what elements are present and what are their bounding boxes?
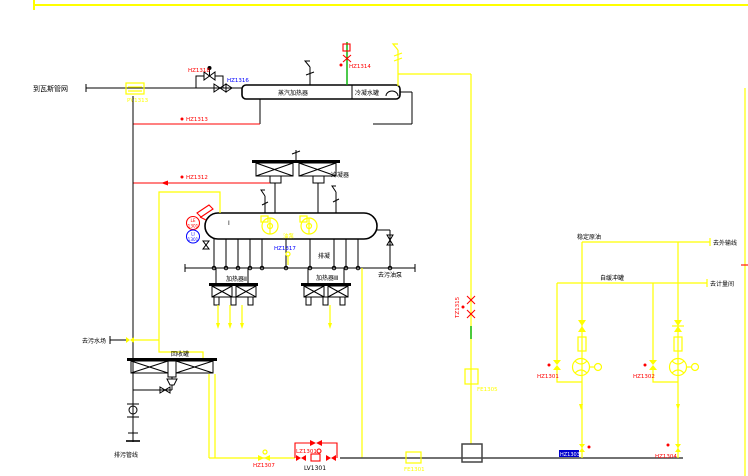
to-sewage-label: 去污水场 — [82, 337, 106, 345]
hz1316-tag: HZ1316 — [227, 78, 249, 84]
drain-header: 去污油泵 — [185, 264, 415, 279]
lv1301-tag: LV1301 — [304, 465, 326, 472]
pump-suction-header: FE1301 — [340, 452, 683, 473]
drum-pump-2: 油泵 — [283, 216, 317, 240]
level-indicator-li1301: LI 1301 — [187, 230, 210, 249]
fe1301-tag: FE1301 — [404, 467, 425, 473]
buffer-drum: Ⅰ — [205, 186, 393, 268]
fe1305-tag: FE1305 — [477, 387, 498, 393]
to-gas-network-label: 到瓦斯管网 — [33, 84, 68, 93]
lv1301-control-station: LZ1301 LV1301 — [295, 440, 337, 472]
bypass-valve-hz1318: HZ1318 — [188, 66, 223, 88]
hz1304-tag: HZ1304 — [655, 454, 677, 460]
yellow-relief-line — [393, 44, 471, 86]
level-transmitter-le1301: LE 1301 — [187, 217, 200, 230]
discharge-line-1: 稳定原油 去外输线 — [577, 233, 737, 247]
recovery-tank-label: 回收罐 — [171, 350, 189, 358]
hz1314-tag: HZ1314 — [349, 64, 371, 70]
svg-text:HZ1303: HZ1303 — [560, 452, 580, 458]
drain-pit — [462, 444, 482, 462]
pid-drawing-canvas: 到瓦斯管网 PV1313 HZ1318 HZ1316 蒸汽加热器 冷凝水罐 — [0, 0, 748, 476]
yellow-bottom-feed — [209, 374, 295, 458]
red-line-hz1312: HZ1312 — [133, 175, 270, 186]
condenser: 冷凝器 — [252, 150, 349, 213]
pid-diagram: 到瓦斯管网 PV1313 HZ1318 HZ1316 蒸汽加热器 冷凝水罐 — [0, 0, 748, 476]
svg-text:1301: 1301 — [188, 237, 199, 242]
drain-drops: HZ1317 排凝 — [214, 239, 358, 268]
hz1318-tag: HZ1318 — [188, 68, 210, 74]
yellow-main-riser: TZ1315 FE1305 — [455, 74, 498, 462]
vessel-right-label: 冷凝水罐 — [355, 89, 379, 97]
pump-note: 油泵 — [283, 232, 295, 240]
hz1313-tag: HZ1313 — [186, 117, 208, 123]
line2-end-label: 去计量间 — [710, 280, 734, 288]
svg-text:LI: LI — [191, 232, 195, 237]
control-valve-pv1313: PV1313 — [126, 83, 149, 104]
heater-right: 加热器Ⅲ — [301, 268, 351, 305]
pv1313-tag: PV1313 — [127, 98, 149, 104]
svg-text:LE: LE — [191, 218, 196, 223]
line2-mid-label: 自缓冲罐 — [600, 274, 624, 282]
hz1312-tag: HZ1312 — [186, 175, 208, 181]
condenser-label: 冷凝器 — [331, 171, 349, 179]
drum-pump-1 — [261, 216, 278, 234]
pump-1-circuit: HZ1301 HZ1303 — [537, 242, 602, 458]
hz1317-tag: HZ1317 — [274, 246, 296, 252]
drain-note: 排凝 — [318, 252, 330, 260]
heater-left-label: 加热器Ⅱ — [226, 275, 247, 283]
to-sump-pump-label: 去污油泵 — [378, 271, 402, 279]
line1-end-label: 去外输线 — [713, 239, 737, 247]
svg-text:1301: 1301 — [188, 224, 199, 229]
valve-hz1307: HZ1307 — [253, 450, 275, 469]
vessel-left-label: 蒸汽加热器 — [278, 89, 308, 97]
left-drain-riser: 去污水场 排污管线 — [82, 96, 159, 459]
green-line-hz1314: HZ1314 — [340, 42, 372, 85]
hz1302-tag: HZ1302 — [633, 374, 655, 380]
pump-2-circuit: HZ1302 HZ1304 — [633, 242, 699, 460]
heater-right-label: 加热器Ⅲ — [316, 274, 338, 282]
tz1315-tag: TZ1315 — [455, 296, 461, 319]
level-gauge — [197, 205, 213, 220]
hz1301-tag: HZ1301 — [537, 374, 559, 380]
drain-cap-label: 排污管线 — [114, 451, 138, 459]
line1-start-label: 稳定原油 — [577, 233, 601, 241]
hz1307-tag: HZ1307 — [253, 463, 275, 469]
gas-line-to-network: 到瓦斯管网 — [33, 84, 242, 93]
red-line-hz1313: HZ1313 — [133, 117, 260, 124]
steam-heater-vessel: 蒸汽加热器 冷凝水罐 — [242, 61, 412, 124]
drum-mark: Ⅰ — [228, 220, 230, 227]
heater-left: 加热器Ⅱ — [209, 268, 258, 305]
discharge-line-2: 自缓冲罐 去计量间 — [557, 274, 734, 288]
